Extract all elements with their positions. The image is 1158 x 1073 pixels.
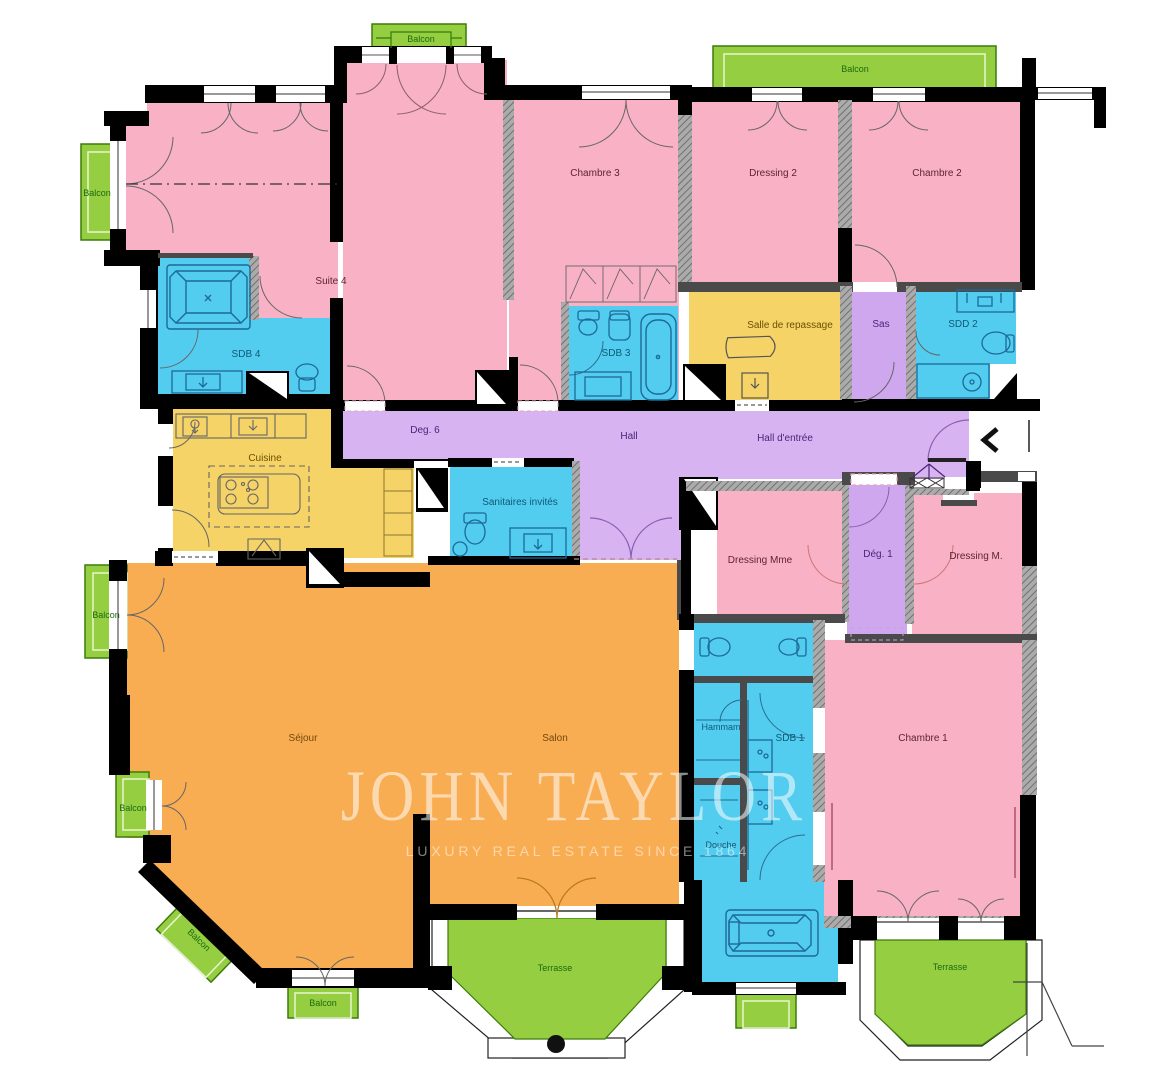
svg-text:Hall d'entrée: Hall d'entrée (757, 433, 813, 444)
svg-text:Salle de repassage: Salle de repassage (747, 320, 833, 331)
svg-text:Chambre 3: Chambre 3 (570, 168, 620, 179)
svg-text:Dressing M.: Dressing M. (949, 551, 1002, 562)
svg-text:Balcon: Balcon (841, 64, 869, 74)
svg-text:SDB 1: SDB 1 (776, 733, 805, 744)
svg-text:Hammam: Hammam (701, 722, 740, 732)
svg-text:Terrasse: Terrasse (538, 963, 573, 973)
svg-text:Dressing 2: Dressing 2 (749, 168, 797, 179)
svg-text:Séjour: Séjour (289, 733, 319, 744)
svg-text:SDB 3: SDB 3 (602, 348, 631, 359)
svg-text:Chambre 2: Chambre 2 (912, 168, 962, 179)
svg-text:Hall: Hall (620, 431, 637, 442)
svg-text:Chambre 1: Chambre 1 (898, 733, 948, 744)
svg-text:LUXURY REAL ESTATE SINCE 1864: LUXURY REAL ESTATE SINCE 1864 (406, 843, 750, 859)
svg-text:Sanitaires invités: Sanitaires invités (482, 497, 558, 508)
svg-text:Cuisine: Cuisine (248, 453, 282, 464)
svg-text:Balcon: Balcon (92, 610, 120, 620)
svg-text:Balcon: Balcon (83, 188, 111, 198)
svg-text:Terrasse: Terrasse (933, 962, 968, 972)
svg-text:Suite 4: Suite 4 (315, 276, 347, 287)
svg-text:SDD 2: SDD 2 (948, 319, 978, 330)
svg-text:Balcon: Balcon (309, 998, 337, 1008)
svg-text:SDB 4: SDB 4 (232, 349, 261, 360)
svg-text:Dressing Mme: Dressing Mme (728, 555, 793, 566)
svg-text:Deg. 6: Deg. 6 (410, 425, 440, 436)
svg-text:Balcon: Balcon (119, 803, 147, 813)
svg-text:Dég. 1: Dég. 1 (863, 549, 893, 560)
svg-text:JOHN TAYLOR: JOHN TAYLOR (341, 757, 807, 837)
svg-text:Salon: Salon (542, 733, 568, 744)
svg-text:Sas: Sas (872, 319, 889, 330)
svg-text:Balcon: Balcon (407, 34, 435, 44)
